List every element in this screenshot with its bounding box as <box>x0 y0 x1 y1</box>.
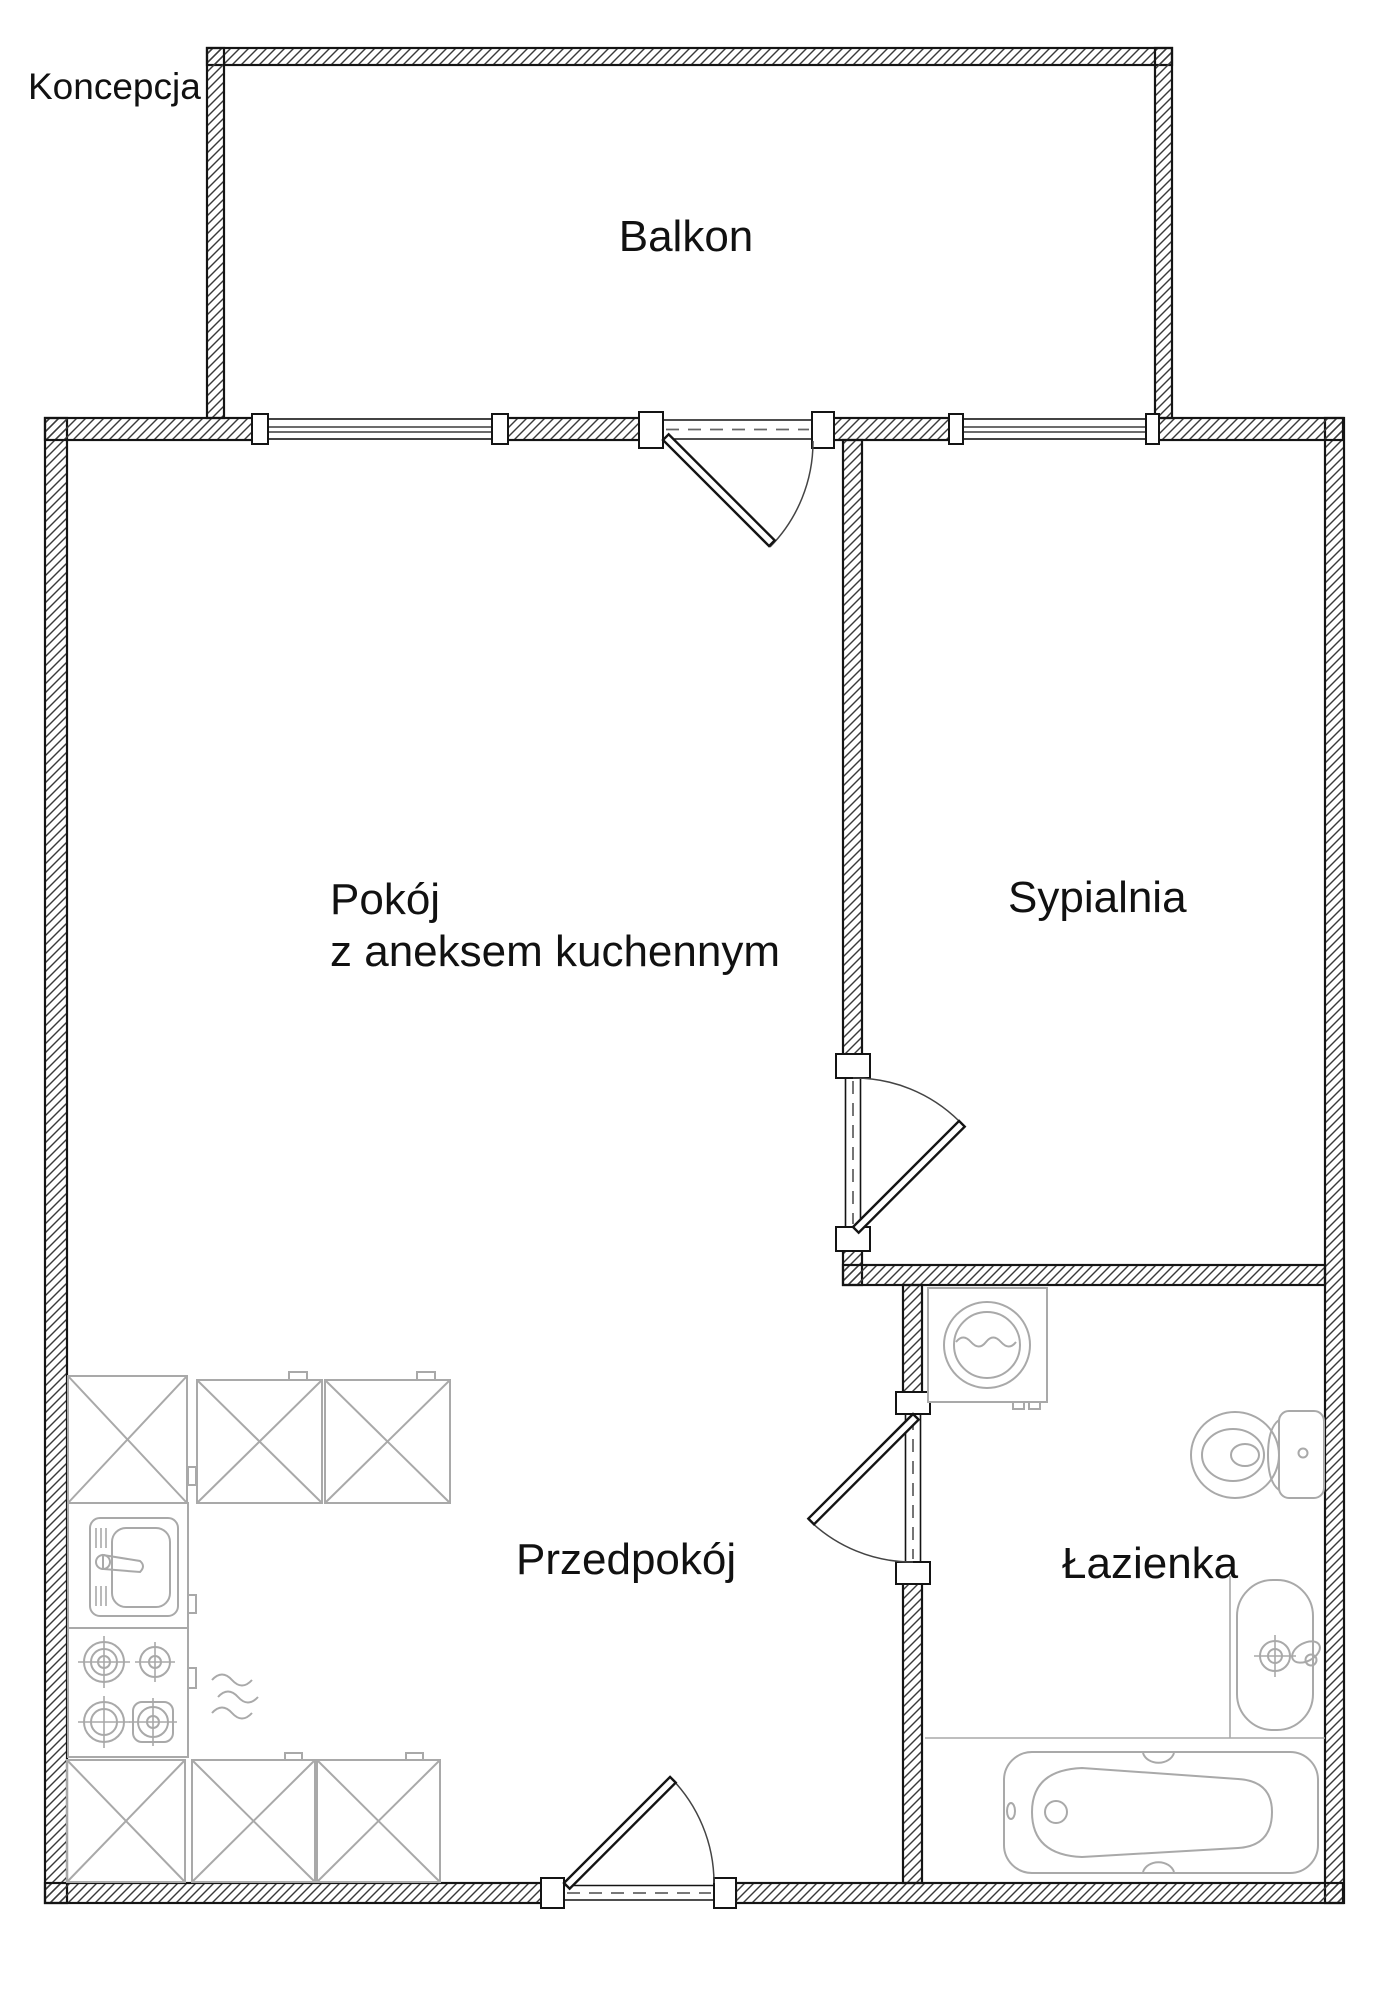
toilet-tank <box>1279 1411 1324 1498</box>
wall-lazienka-top <box>843 1265 1325 1285</box>
room-label-przedpokoj: Przedpokój <box>516 1535 736 1584</box>
door-jamb <box>541 1878 564 1908</box>
wall-top-segment <box>507 418 640 440</box>
vent-squiggle <box>212 1675 258 1719</box>
window-end-cap <box>949 414 963 444</box>
bathtub-grip <box>1143 1753 1174 1763</box>
door-leaf <box>663 434 775 546</box>
toilet-flush <box>1231 1444 1259 1466</box>
cabinet-handle <box>417 1372 435 1380</box>
balcony-wall-top <box>207 48 1172 65</box>
bathtub-overflow <box>1007 1803 1015 1819</box>
window-frame <box>268 419 493 439</box>
room-label-pokoj-line2: z aneksem kuchennym <box>330 927 780 976</box>
burner <box>78 1696 130 1748</box>
cabinet-handle <box>289 1372 307 1380</box>
cooktop-4-burner <box>68 1628 188 1757</box>
soap-dish <box>1289 1637 1324 1667</box>
sypialnia-door-opening <box>841 1078 864 1227</box>
door-swing-arc <box>853 1078 959 1121</box>
cabinet-handle <box>188 1668 196 1688</box>
washer-foot <box>1029 1402 1040 1409</box>
burner <box>135 1642 175 1682</box>
floor-plan-canvas: Koncepcja Balkon Pokój z aneksem kuchenn… <box>0 0 1396 2000</box>
wall-przedpokoj-lazienka-lower <box>903 1583 922 1883</box>
cabinet-handle <box>406 1753 423 1760</box>
burner <box>129 1698 177 1746</box>
window-end-cap <box>1146 414 1159 444</box>
wall-top-segment <box>45 418 253 440</box>
base-cabinet <box>197 1372 322 1503</box>
door-jamb <box>714 1878 736 1908</box>
room-label-lazienka: Łazienka <box>1062 1539 1239 1588</box>
room-label-pokoj-line1: Pokój <box>330 875 440 924</box>
cabinet-handle <box>285 1753 302 1760</box>
door-jamb <box>639 412 663 448</box>
bathtub <box>1004 1752 1318 1873</box>
wall-przedpokoj-lazienka-upper <box>903 1285 922 1393</box>
burner <box>78 1636 130 1688</box>
door-jamb <box>896 1392 930 1414</box>
door-jamb <box>836 1054 870 1078</box>
door-jamb <box>812 412 834 448</box>
toilet-bowl <box>1191 1412 1279 1498</box>
door-swing-arc <box>808 1519 913 1562</box>
outer-walls <box>45 418 1344 1903</box>
sink-faucet <box>96 1555 143 1572</box>
washbasin <box>925 1576 1325 1738</box>
entrance-door-opening <box>564 1881 714 1905</box>
balcony-door-opening <box>662 416 813 442</box>
window-sypialnia <box>962 419 1146 439</box>
balcony-door <box>663 434 813 547</box>
door-jamb <box>896 1562 930 1584</box>
door-jamb <box>836 1227 870 1251</box>
base-cabinet <box>192 1753 315 1882</box>
lazienka-door-opening <box>901 1414 924 1562</box>
entrance-door <box>564 1777 714 1889</box>
toilet-button <box>1299 1449 1308 1458</box>
wall-bottom-segment <box>45 1883 542 1903</box>
bathtub-drain <box>1045 1801 1067 1823</box>
room-label-balkon: Balkon <box>619 212 754 261</box>
sypialnia-door <box>853 1078 965 1233</box>
window-end-cap <box>252 414 268 444</box>
wall-top-segment <box>1158 418 1343 440</box>
wall-right <box>1325 418 1344 1903</box>
interior-walls <box>843 440 1325 1883</box>
door-leaf <box>853 1121 965 1233</box>
washing-machine <box>928 1288 1047 1409</box>
window-end-cap <box>492 414 508 444</box>
window-pokoj <box>268 419 493 439</box>
wall-bottom-segment <box>736 1883 1343 1903</box>
wall-pokoj-sypialnia <box>843 440 862 1055</box>
door-swing-arc <box>770 441 813 547</box>
toilet-seat <box>1202 1429 1264 1481</box>
door-leaf <box>564 1777 676 1889</box>
bathtub-grip <box>1143 1862 1174 1872</box>
toilet-tank-side <box>1268 1420 1279 1490</box>
bathtub-basin <box>1032 1768 1272 1857</box>
bathtub-rim <box>1004 1752 1318 1873</box>
floor-plan-drawing: Koncepcja Balkon Pokój z aneksem kuchenn… <box>0 0 1396 2000</box>
balcony-wall-right <box>1155 48 1172 418</box>
kitchen-sink <box>68 1503 188 1628</box>
washer-foot <box>1013 1402 1024 1409</box>
cabinet-handle <box>188 1467 196 1485</box>
corner-base-cabinet <box>67 1760 185 1882</box>
base-cabinet <box>325 1372 450 1503</box>
sink-bowl <box>112 1528 170 1607</box>
toilet <box>1191 1411 1324 1498</box>
balcony-wall-left <box>207 48 224 418</box>
wall-top-segment <box>833 418 950 440</box>
window-frame <box>962 419 1146 439</box>
base-cabinet <box>317 1753 440 1882</box>
kitchen-fixtures <box>67 1372 450 1882</box>
basin-faucet <box>1254 1635 1296 1677</box>
cabinet-handle <box>188 1595 196 1613</box>
wall-left <box>45 418 67 1903</box>
plan-title: Koncepcja <box>28 66 201 107</box>
corner-base-cabinet <box>68 1376 187 1503</box>
room-label-sypialnia: Sypialnia <box>1008 873 1187 922</box>
door-swing-arc <box>670 1777 714 1883</box>
